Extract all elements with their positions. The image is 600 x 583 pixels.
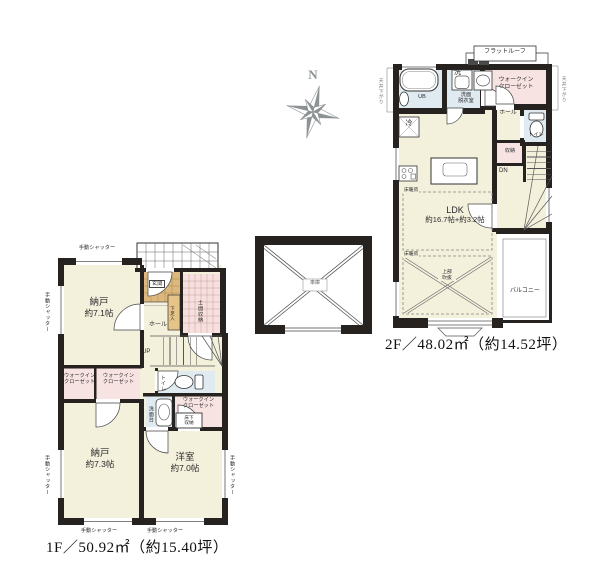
shutter-label-left1: 手動シャッター <box>44 283 50 341</box>
toilet-label-1f: トイレ <box>159 373 165 393</box>
western-room-label: 洋室 約7.0帖 <box>153 452 217 473</box>
shutter-label-top: 手動シャッター <box>68 245 126 251</box>
walk-in-closet-label-1f-bottom: ウォークイン クローゼット <box>175 397 222 409</box>
toilet-icon-1f <box>175 375 203 389</box>
walk-in-closet-label-2f: ウォークイン クローゼット <box>486 77 546 91</box>
garage-opening <box>285 325 341 334</box>
fridge-label: 冷 <box>402 120 416 128</box>
floor1-area-label: 1F／50.92㎡（約15.40坪） <box>46 540 228 558</box>
flat-roof-label: フラットルーフ <box>474 49 536 56</box>
kitchen-counter <box>431 158 477 184</box>
garage-label: 車庫 <box>303 281 327 287</box>
hall-label-1f: ホール <box>145 322 171 329</box>
storage-label-2f: 収納 <box>498 148 522 154</box>
void-above-label: 上部 吹抜 <box>438 270 456 281</box>
unit-bath-label: UB <box>412 94 432 100</box>
storage73-label: 納戸 約7.3帖 <box>70 448 130 469</box>
toilet-label-2f: トイレ <box>524 132 548 138</box>
ceiling-lowered-right-label: 天井下がり <box>560 62 566 116</box>
doma-storage-label: 土間収納 <box>197 287 203 335</box>
shutter-label-bottom1: 手動シャッター <box>72 528 126 534</box>
floor-heating-label-1: 床暖房 <box>403 188 419 194</box>
shutter-label-bottom2: 手動シャッター <box>138 528 192 534</box>
stove-icon <box>399 166 417 181</box>
washbasin-icon-1f <box>156 399 172 426</box>
walk-in-closet-label-1f-left1: ウォークイン クローゼット <box>64 373 94 385</box>
floor2-area-label: 2F／48.02㎡（約14.52坪） <box>385 337 567 355</box>
stairs-up-label: UP <box>142 349 150 356</box>
floor-heating-label-2: 床暖房 <box>403 252 419 258</box>
stairs-down-label: DN <box>499 168 508 175</box>
stairs-1f <box>157 337 202 365</box>
storage71-label: 納戸 約7.1帖 <box>69 297 129 318</box>
compass-north-label: N <box>303 67 323 82</box>
balcony-label: バルコニー <box>502 288 548 295</box>
washroom-label: 洗面 脱衣室 <box>449 92 483 104</box>
underfloor-storage-label: 床下 収納 <box>177 415 201 426</box>
shutter-label-left2: 手動シャッター <box>44 446 50 504</box>
balcony-floor <box>497 234 549 320</box>
compass-rose <box>280 79 345 144</box>
walk-in-closet-label-1f-left2: ウォークイン クローゼット <box>97 373 140 385</box>
stairs-2f <box>527 146 551 182</box>
floor-plan-page: フラットルーフ 天井下がり 天井下がり UB 洗 洗面 脱衣室 ウォークイン ク… <box>0 0 600 583</box>
ceiling-lowered-left-label: 天井下がり <box>377 64 383 118</box>
washer-label: 洗 <box>454 69 461 77</box>
hall-label-2f: ホール <box>495 110 521 117</box>
porch <box>137 243 218 271</box>
vanity-label: 洗面台 <box>147 401 153 427</box>
shutter-label-right: 手動シャッター <box>229 446 235 504</box>
entrance-label: 玄関 <box>149 280 165 288</box>
ldk-size-label: 約16.7帖+約3.2帖 <box>408 216 502 225</box>
